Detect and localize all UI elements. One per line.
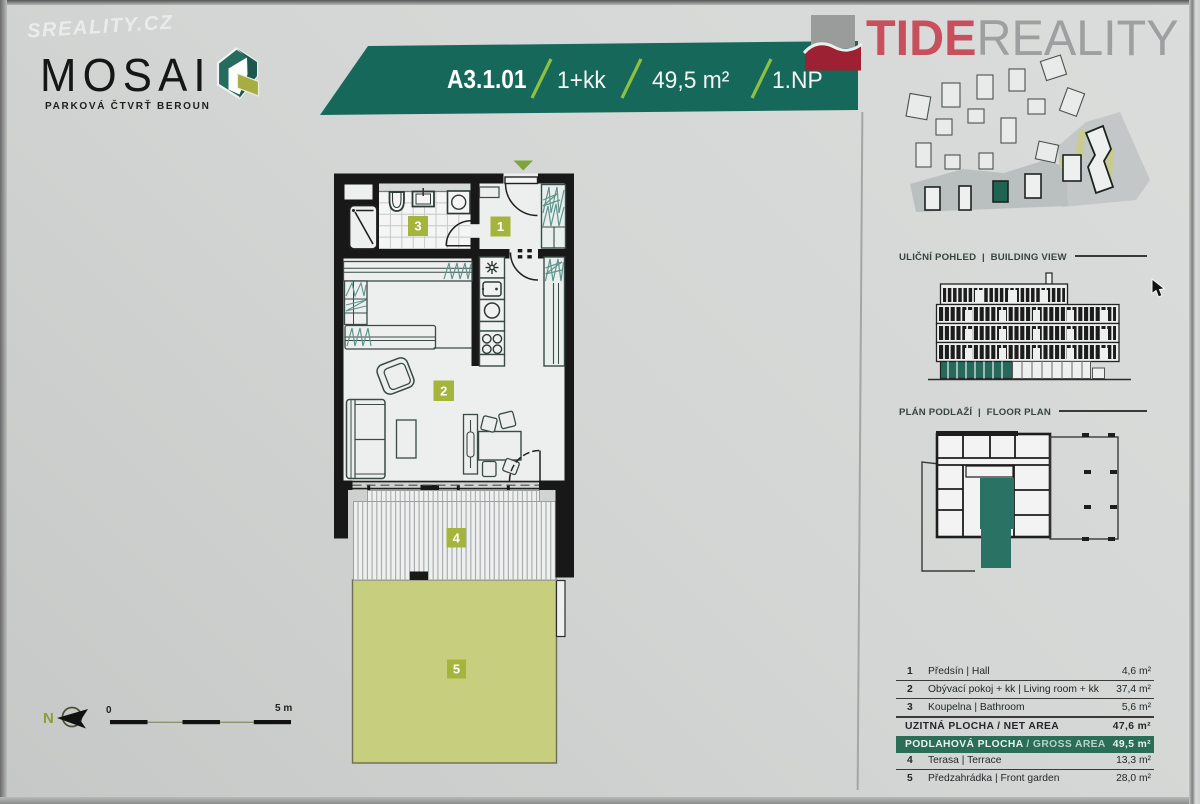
svg-text:2: 2 [440, 384, 447, 399]
svg-text:1: 1 [497, 219, 504, 234]
svg-text:4: 4 [453, 531, 461, 546]
svg-text:0: 0 [106, 705, 112, 716]
svg-text:5 m: 5 m [275, 703, 292, 714]
svg-text:5: 5 [453, 662, 460, 677]
svg-text:3: 3 [414, 219, 421, 234]
svg-text:N: N [43, 710, 54, 727]
